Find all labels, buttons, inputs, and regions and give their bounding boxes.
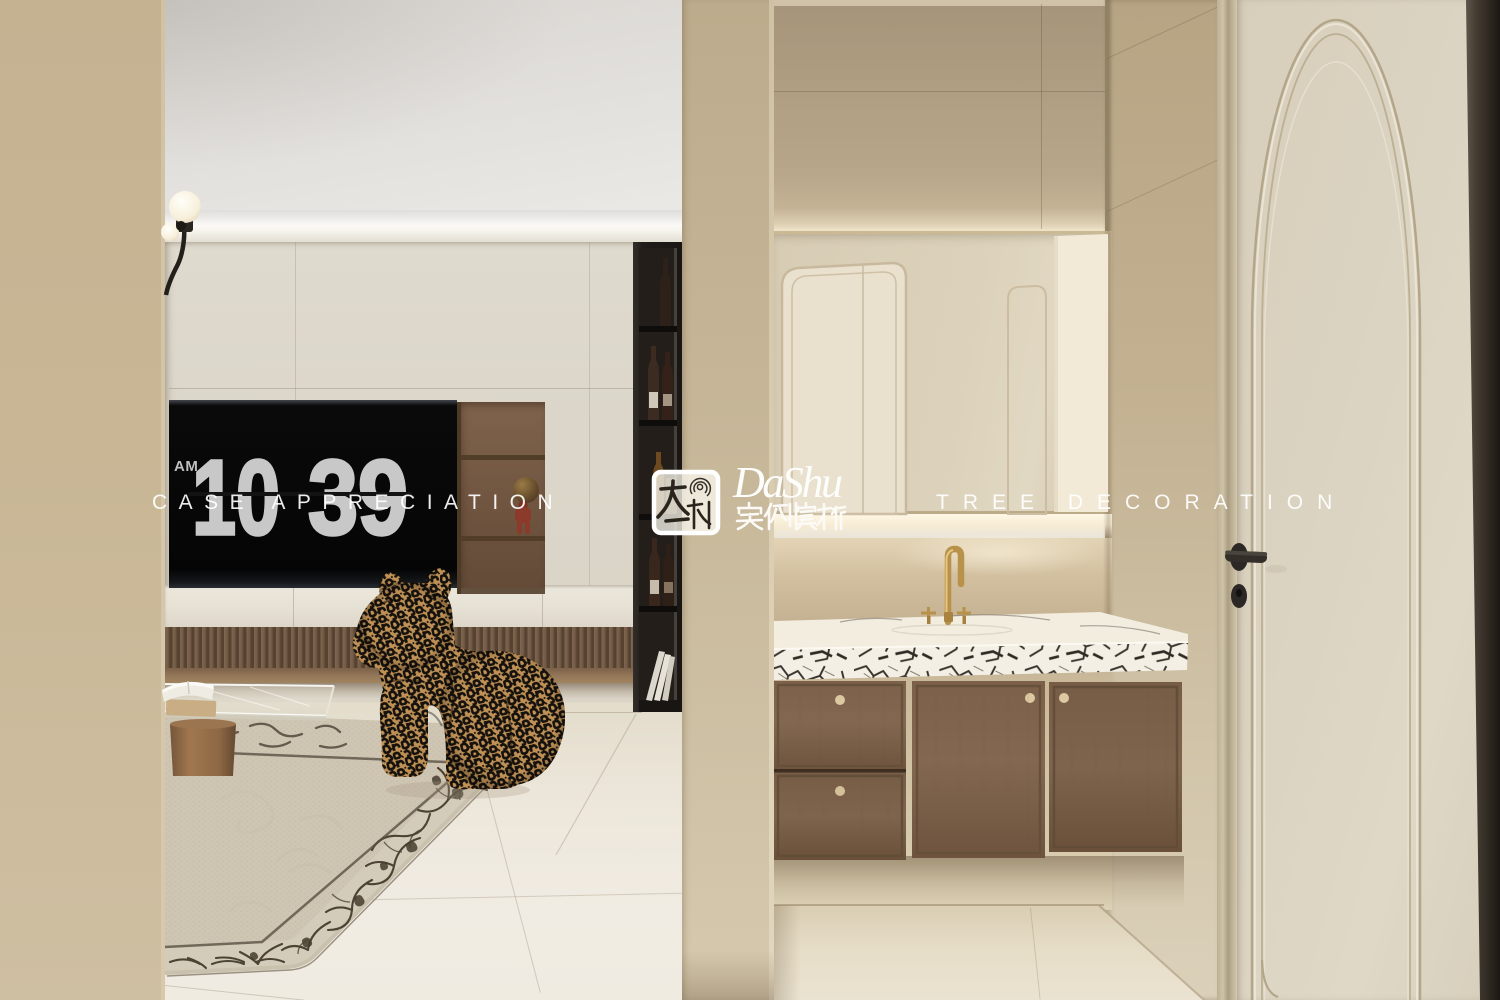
svg-text:DaShu: DaShu	[732, 458, 843, 507]
